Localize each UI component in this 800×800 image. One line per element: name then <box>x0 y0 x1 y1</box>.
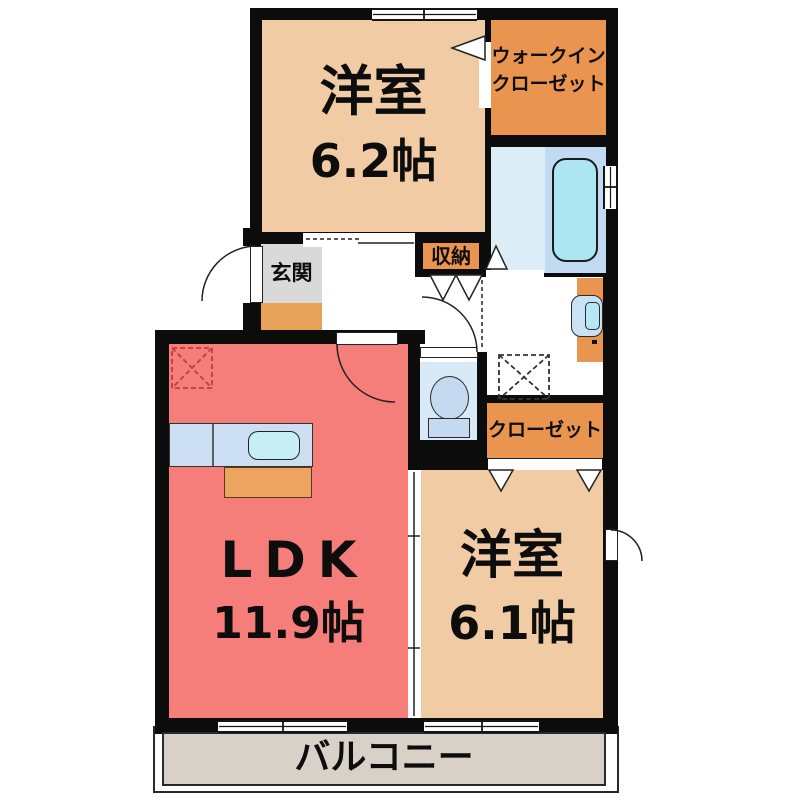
bedroom2-name-label: 洋室 <box>421 528 603 585</box>
kitchen-sink <box>248 431 300 460</box>
entrance-label: 玄関 <box>261 262 322 285</box>
ldk-name-label: LDK <box>169 533 408 588</box>
toilet-door-arc <box>422 297 477 352</box>
wic-label-line1: ウォークイン <box>491 46 606 67</box>
window-ldk-south <box>218 720 347 733</box>
washroom-accordion-door <box>477 277 487 352</box>
room-bedroom1 <box>262 20 485 232</box>
window-top <box>372 8 477 21</box>
kitchen-counter-front <box>224 467 312 498</box>
wall-under-toilet <box>405 440 487 472</box>
bedroom1-size-label: 6.2帖 <box>262 136 485 187</box>
washbasin-faucet-dot <box>592 340 597 344</box>
storage-label: 収納 <box>423 245 479 267</box>
toilet-door-leaf <box>420 347 478 358</box>
sliding-door-partition <box>408 470 421 718</box>
closet-label: クローゼット <box>487 420 603 441</box>
storage-door-triangle-1 <box>430 275 456 300</box>
wall-left <box>155 330 169 734</box>
window-bath <box>603 166 618 209</box>
toilet-tank <box>428 418 470 438</box>
toilet-bowl <box>430 376 469 420</box>
closet-door-band <box>488 458 602 470</box>
bedroom1-sliding-door <box>303 233 415 247</box>
balcony-label: バルコニー <box>162 738 606 778</box>
entrance-step <box>261 303 322 330</box>
wic-label-line2: クローゼット <box>491 74 606 95</box>
wall-right-bottom <box>603 470 618 732</box>
bath-door-gap <box>486 270 544 284</box>
ldk-size-label: 11.9帖 <box>169 600 408 648</box>
window-bedroom2-south <box>424 720 539 733</box>
ldk-door-leaf <box>336 332 398 345</box>
bedroom2-door-leaf <box>605 529 618 561</box>
bathtub <box>552 158 598 262</box>
bedroom1-name-label: 洋室 <box>262 62 485 121</box>
washbasin-bowl-inner <box>585 302 600 330</box>
room-bedroom2 <box>421 470 603 718</box>
bedroom2-size-label: 6.1帖 <box>421 598 603 649</box>
floor-plan: 洋室 6.2帖 ウォークイン クローゼット 収納 玄関 クローゼット LDK 1… <box>0 0 800 800</box>
